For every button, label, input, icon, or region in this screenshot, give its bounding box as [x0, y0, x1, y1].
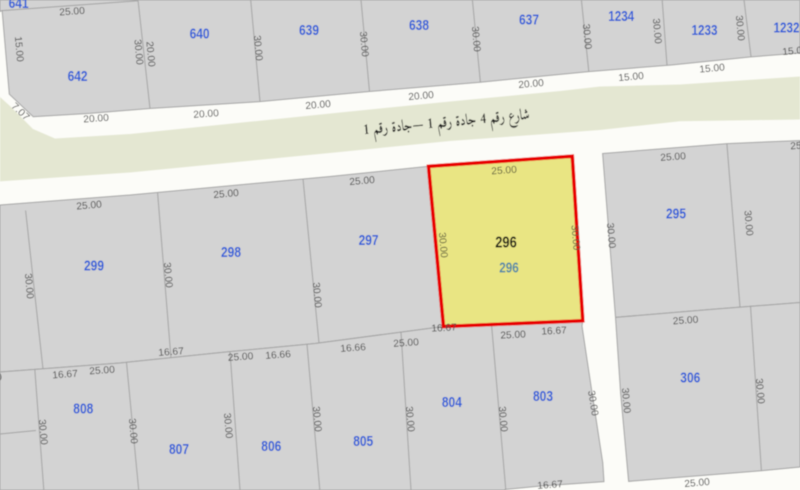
- svg-text:30.00: 30.00: [568, 224, 581, 251]
- svg-text:15.00: 15.00: [699, 62, 726, 75]
- svg-text:16.67: 16.67: [52, 369, 79, 382]
- svg-text:15.00: 15.00: [782, 45, 800, 58]
- svg-text:30.00: 30.00: [357, 31, 370, 58]
- svg-text:1233: 1233: [692, 22, 718, 39]
- svg-text:20.00: 20.00: [518, 78, 545, 91]
- svg-text:30.00: 30.00: [436, 232, 449, 259]
- svg-text:30.00: 30.00: [469, 26, 482, 53]
- svg-text:30.00: 30.00: [221, 413, 234, 440]
- svg-text:15.00: 15.00: [12, 36, 25, 63]
- svg-text:25.00: 25.00: [660, 151, 687, 164]
- svg-text:25.00: 25.00: [393, 337, 420, 350]
- svg-text:25.00: 25.00: [213, 188, 240, 201]
- svg-text:25.00: 25.00: [76, 199, 103, 212]
- svg-text:25.00: 25.00: [491, 165, 518, 178]
- svg-text:803: 803: [533, 388, 553, 405]
- svg-text:16.67: 16.67: [537, 479, 564, 490]
- svg-text:297: 297: [359, 232, 379, 249]
- svg-text:805: 805: [353, 433, 373, 450]
- svg-text:30.00: 30.00: [251, 35, 264, 62]
- svg-text:25.00: 25.00: [89, 365, 116, 378]
- svg-text:641: 641: [9, 0, 29, 12]
- svg-text:30.00: 30.00: [161, 262, 174, 289]
- svg-text:638: 638: [409, 17, 429, 34]
- svg-text:30.00: 30.00: [131, 39, 144, 66]
- svg-text:642: 642: [68, 68, 88, 85]
- svg-text:30.00: 30.00: [403, 406, 416, 433]
- svg-text:30.00: 30.00: [741, 210, 754, 237]
- svg-text:808: 808: [73, 400, 93, 417]
- svg-text:804: 804: [442, 394, 463, 411]
- svg-text:16.66: 16.66: [265, 349, 292, 362]
- svg-text:295: 295: [666, 206, 686, 223]
- svg-text:30.00: 30.00: [733, 15, 746, 42]
- svg-text:25.00: 25.00: [349, 175, 376, 188]
- svg-text:25.00: 25.00: [673, 315, 700, 328]
- svg-text:30.00: 30.00: [22, 273, 35, 300]
- svg-text:640: 640: [190, 26, 210, 43]
- svg-text:25.00: 25.00: [790, 140, 800, 153]
- svg-text:806: 806: [261, 438, 281, 455]
- svg-text:30.00: 30.00: [36, 419, 49, 446]
- svg-text:20.00: 20.00: [408, 90, 435, 103]
- svg-text:299: 299: [84, 258, 104, 275]
- svg-text:20.00: 20.00: [83, 113, 110, 126]
- svg-text:30.00: 30.00: [496, 406, 509, 433]
- svg-text:30.00: 30.00: [604, 222, 617, 249]
- svg-text:30.00: 30.00: [126, 418, 139, 445]
- svg-text:30.00: 30.00: [619, 387, 632, 414]
- svg-text:298: 298: [221, 244, 241, 261]
- svg-text:16.66: 16.66: [340, 342, 367, 355]
- svg-text:1232: 1232: [774, 20, 800, 37]
- svg-text:306: 306: [680, 370, 700, 387]
- svg-text:296: 296: [499, 260, 519, 276]
- svg-text:807: 807: [169, 441, 189, 458]
- svg-text:16.67: 16.67: [158, 346, 185, 359]
- svg-text:30.00: 30.00: [650, 18, 663, 45]
- svg-text:30.00: 30.00: [753, 378, 766, 405]
- svg-text:639: 639: [299, 22, 319, 39]
- svg-text:30.00: 30.00: [580, 23, 593, 50]
- svg-text:25.00: 25.00: [684, 477, 711, 490]
- svg-text:637: 637: [519, 12, 539, 29]
- svg-text:296: 296: [495, 235, 517, 252]
- svg-text:25.00: 25.00: [59, 6, 86, 19]
- svg-text:20.00: 20.00: [193, 108, 220, 121]
- svg-text:16.67: 16.67: [541, 325, 567, 337]
- svg-text:25.00: 25.00: [228, 351, 255, 364]
- svg-text:30.00: 30.00: [310, 282, 323, 309]
- svg-text:15.00: 15.00: [618, 71, 645, 84]
- svg-text:25.00: 25.00: [500, 329, 526, 341]
- svg-text:20.00: 20.00: [143, 41, 156, 68]
- svg-text:16.67: 16.67: [431, 322, 457, 334]
- svg-text:30.00: 30.00: [310, 406, 323, 433]
- svg-text:20.00: 20.00: [305, 99, 332, 112]
- svg-text:1234: 1234: [608, 8, 635, 25]
